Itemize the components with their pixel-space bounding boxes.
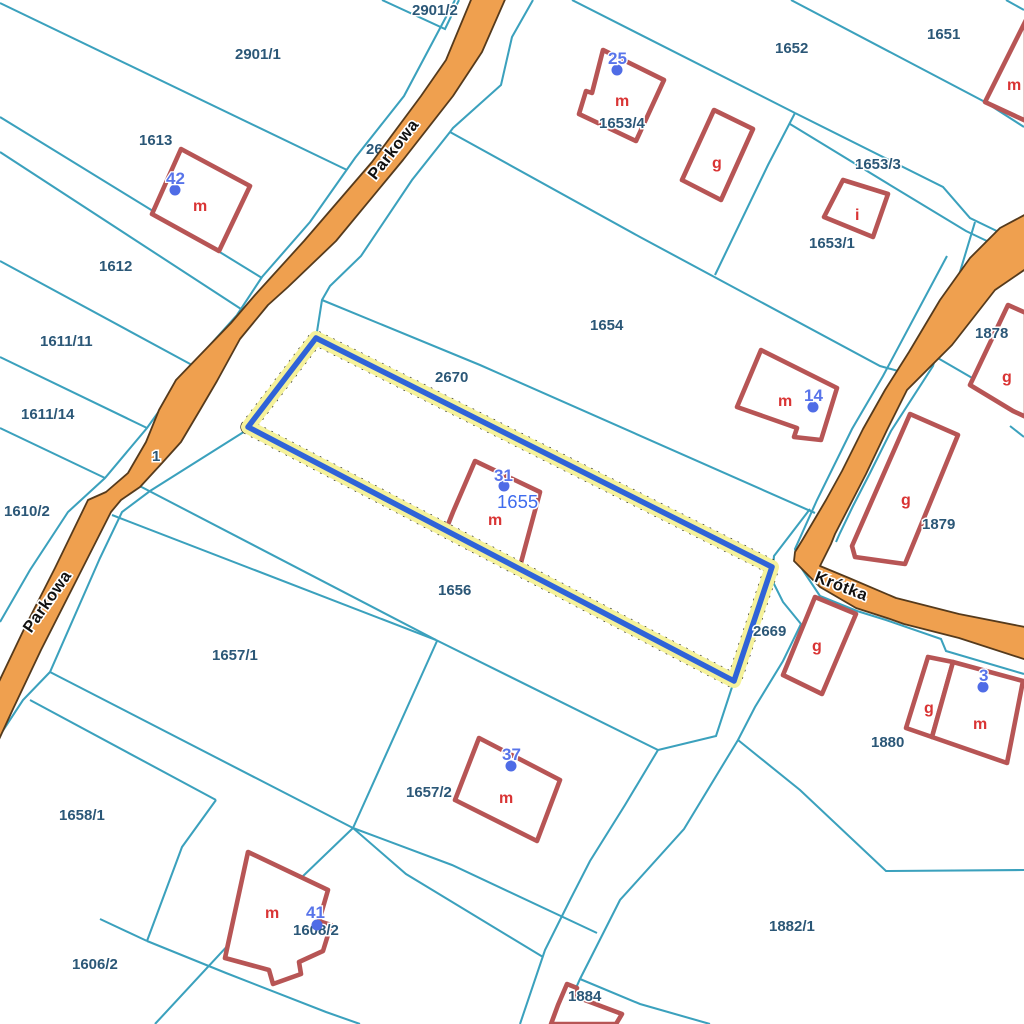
svg-text:1878: 1878: [975, 325, 1008, 342]
svg-text:1610/2: 1610/2: [4, 503, 50, 520]
svg-text:1657/1: 1657/1: [212, 647, 258, 664]
svg-text:m: m: [265, 905, 279, 922]
svg-text:m: m: [615, 93, 629, 110]
svg-text:i: i: [855, 207, 859, 224]
svg-text:1606/2: 1606/2: [72, 956, 118, 973]
svg-text:1611/14: 1611/14: [21, 406, 75, 423]
svg-text:1653/1: 1653/1: [809, 235, 855, 252]
svg-text:2901/1: 2901/1: [235, 46, 281, 63]
svg-text:1880: 1880: [871, 734, 904, 751]
svg-text:m: m: [778, 393, 792, 410]
svg-text:31: 31: [494, 466, 513, 485]
svg-text:41: 41: [306, 903, 325, 922]
svg-text:1656: 1656: [438, 582, 471, 599]
svg-text:1611/11: 1611/11: [40, 333, 93, 350]
svg-text:g: g: [812, 638, 822, 655]
svg-text:m: m: [193, 198, 207, 215]
svg-text:1613: 1613: [139, 132, 172, 149]
svg-text:42: 42: [166, 169, 185, 188]
svg-text:1657/2: 1657/2: [406, 784, 452, 801]
svg-text:1612: 1612: [99, 258, 132, 275]
svg-text:1651: 1651: [927, 26, 960, 43]
svg-text:1879: 1879: [922, 516, 955, 533]
svg-text:m: m: [973, 716, 987, 733]
svg-text:1882/1: 1882/1: [769, 918, 815, 935]
svg-text:g: g: [901, 492, 911, 509]
svg-text:1: 1: [152, 448, 160, 465]
svg-text:1653/3: 1653/3: [855, 156, 901, 173]
svg-text:2670: 2670: [435, 369, 468, 386]
svg-text:1655: 1655: [497, 491, 538, 512]
svg-text:m: m: [499, 790, 513, 807]
svg-text:14: 14: [804, 386, 823, 405]
svg-text:g: g: [1002, 369, 1012, 386]
svg-text:m: m: [488, 512, 502, 529]
svg-text:g: g: [712, 155, 722, 172]
svg-text:25: 25: [608, 49, 627, 68]
svg-text:1653/4: 1653/4: [599, 115, 646, 132]
svg-text:1654: 1654: [590, 317, 624, 334]
svg-text:2669: 2669: [753, 623, 786, 640]
svg-text:1658/1: 1658/1: [59, 807, 105, 824]
svg-text:2901/2: 2901/2: [412, 2, 458, 19]
svg-text:1652: 1652: [775, 40, 808, 57]
svg-text:m: m: [1007, 77, 1021, 94]
svg-text:g: g: [924, 700, 934, 717]
svg-text:1884: 1884: [568, 988, 602, 1005]
svg-text:3: 3: [979, 666, 988, 685]
svg-text:37: 37: [502, 745, 521, 764]
